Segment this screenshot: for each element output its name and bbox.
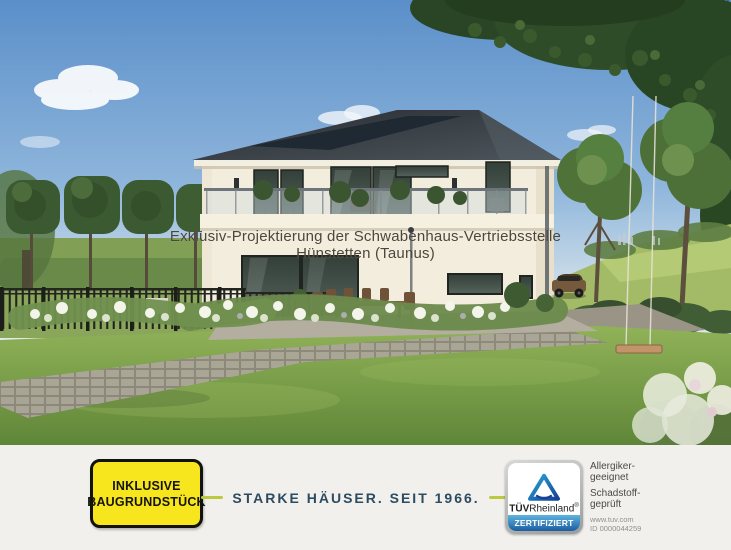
caption-line-2: Hünstetten (Taunus) xyxy=(0,246,731,263)
tuv-brand: TÜVRheinland® xyxy=(509,501,578,514)
tuv-triangle-icon xyxy=(527,473,561,501)
wall-lamp-icon xyxy=(452,178,457,188)
tuv-certification-seal: TÜVRheinland® ZERTIFIZIERT xyxy=(505,460,583,534)
slogan-dash-left xyxy=(201,496,223,499)
badge-line-1: INKLUSIVE xyxy=(112,478,180,494)
claim-pollutants: Schadstoff-geprüft xyxy=(590,488,652,510)
registered-mark: ® xyxy=(574,503,578,509)
wall-lamp-icon xyxy=(234,178,239,188)
certified-band: ZERTIFIZIERT xyxy=(508,515,580,531)
tuv-url: www.tuv.com xyxy=(590,515,680,524)
tuv-claims: Allergiker-geeignet Schadstoff-geprüft w… xyxy=(590,461,680,533)
boxwood-ball xyxy=(536,294,554,312)
house-photo: Exklusiv-Projektierung der Schwabenhaus-… xyxy=(0,0,731,445)
claim-allergy: Allergiker-geeignet xyxy=(590,461,652,483)
boxwood-ball xyxy=(504,282,530,308)
photo-overlay-caption: Exklusiv-Projektierung der Schwabenhaus-… xyxy=(0,229,731,262)
caption-line-1: Exklusiv-Projektierung der Schwabenhaus-… xyxy=(0,229,731,246)
footer-banner: INKLUSIVE BAUGRUNDSTÜCK STARKE HÄUSER. S… xyxy=(0,445,731,550)
slogan-group: STARKE HÄUSER. SEIT 1966. xyxy=(206,445,506,550)
company-slogan: STARKE HÄUSER. SEIT 1966. xyxy=(232,490,479,506)
real-estate-ad: Exklusiv-Projektierung der Schwabenhaus-… xyxy=(0,0,731,550)
tuv-id: ID 0000044259 xyxy=(590,524,680,533)
badge-line-2: BAUGRUNDSTÜCK xyxy=(87,494,206,510)
inclusive-plot-badge: INKLUSIVE BAUGRUNDSTÜCK xyxy=(90,459,203,528)
garden-house-scene xyxy=(0,0,731,445)
